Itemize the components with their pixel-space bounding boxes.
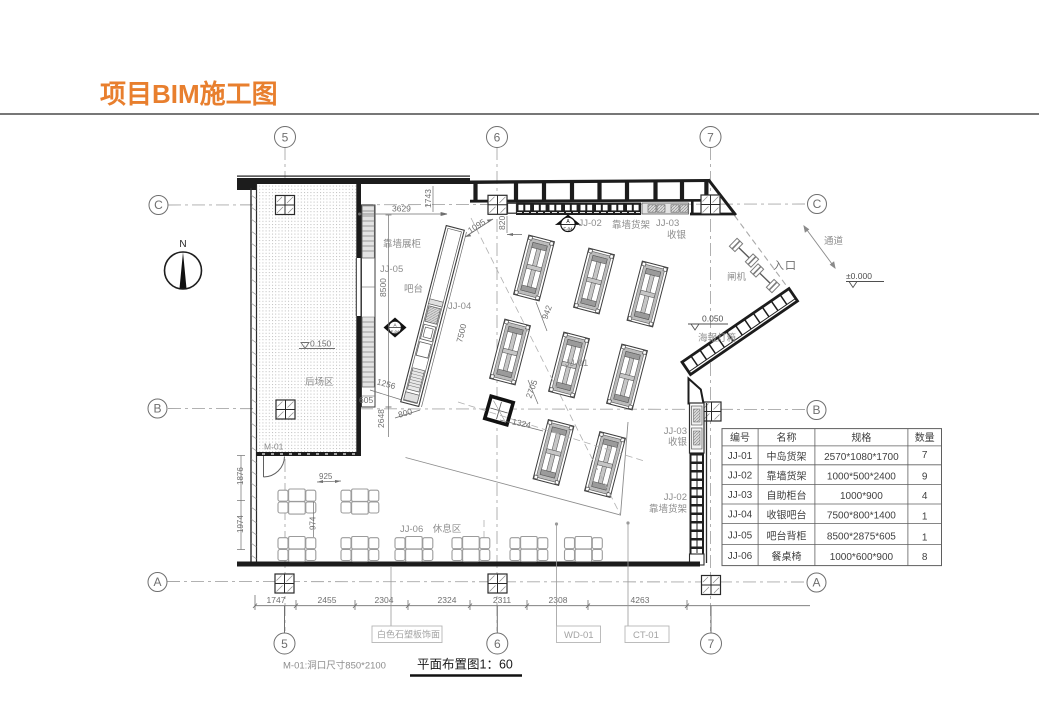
svg-text:6: 6 (494, 131, 501, 145)
svg-text:6: 6 (494, 637, 501, 651)
svg-text:JJ-03: JJ-03 (656, 218, 679, 229)
svg-text:1876: 1876 (236, 467, 245, 485)
svg-text:1974: 1974 (236, 515, 245, 533)
svg-text:JJ-05: JJ-05 (728, 531, 753, 542)
svg-text:2324: 2324 (438, 595, 457, 605)
svg-text:0.050: 0.050 (702, 314, 724, 324)
svg-text:1000*900: 1000*900 (840, 491, 883, 502)
svg-text:收银吧台: 收银吧台 (767, 509, 807, 522)
svg-text:3629: 3629 (392, 204, 411, 214)
svg-text:7: 7 (922, 450, 928, 461)
svg-text:A: A (812, 576, 820, 590)
svg-text:海報灯箱: 海報灯箱 (698, 332, 736, 344)
svg-text:8500*2875*605: 8500*2875*605 (827, 532, 896, 543)
svg-text:中岛货架: 中岛货架 (767, 450, 807, 463)
svg-text:规格: 规格 (851, 431, 871, 444)
svg-text:B: B (153, 402, 161, 416)
svg-text:M-01: M-01 (264, 442, 284, 452)
svg-text:925: 925 (319, 472, 333, 481)
svg-text:JJ-01: JJ-01 (728, 451, 753, 462)
svg-text:靠墙货架: 靠墙货架 (767, 470, 807, 483)
svg-text:收银: 收银 (667, 229, 687, 241)
svg-text:1747: 1747 (267, 595, 286, 605)
svg-text:JJ-05: JJ-05 (380, 264, 403, 275)
svg-text:2570*1080*1700: 2570*1080*1700 (824, 452, 899, 463)
svg-text:7500*800*1400: 7500*800*1400 (827, 511, 896, 522)
svg-text:收银: 收银 (668, 436, 688, 448)
svg-text:JJ-02: JJ-02 (664, 492, 687, 503)
svg-text:974: 974 (309, 516, 318, 530)
svg-text:JJ-03: JJ-03 (728, 490, 753, 501)
svg-text:编号: 编号 (730, 431, 750, 444)
svg-text:F-04: F-04 (391, 329, 400, 334)
svg-text:605: 605 (359, 395, 373, 405)
svg-text:1: 1 (922, 512, 928, 523)
svg-text:2311: 2311 (493, 595, 512, 605)
svg-text:吧台背柜: 吧台背柜 (767, 530, 807, 543)
svg-text:9: 9 (922, 472, 928, 483)
svg-text:0.150: 0.150 (310, 339, 332, 349)
svg-text:C: C (154, 198, 163, 212)
svg-text:±0.000: ±0.000 (846, 271, 872, 281)
svg-text:平面布置图1：60: 平面布置图1：60 (417, 658, 513, 672)
svg-text:CT-01: CT-01 (633, 630, 659, 641)
svg-text:5: 5 (281, 637, 288, 651)
svg-text:白色石塑板饰面: 白色石塑板饰面 (377, 629, 440, 640)
svg-text:靠墙货架: 靠墙货架 (612, 219, 651, 231)
svg-text:名称: 名称 (777, 431, 797, 444)
svg-text:7: 7 (707, 131, 714, 145)
svg-text:820: 820 (497, 216, 507, 230)
svg-text:项目BIM施工图: 项目BIM施工图 (100, 79, 278, 109)
svg-text:A: A (153, 575, 161, 589)
svg-text:4: 4 (922, 491, 928, 502)
svg-text:2455: 2455 (318, 595, 337, 605)
svg-text:自助柜台: 自助柜台 (767, 489, 807, 502)
svg-text:1000*600*900: 1000*600*900 (830, 552, 894, 563)
svg-text:吧台: 吧台 (404, 283, 423, 295)
svg-text:M-01:洞口尺寸850*2100: M-01:洞口尺寸850*2100 (283, 660, 386, 672)
svg-text:1000*500*2400: 1000*500*2400 (827, 472, 896, 483)
svg-text:JJ-06 休息区: JJ-06 休息区 (400, 523, 462, 535)
svg-text:B: B (812, 403, 820, 417)
svg-text:JJ-02: JJ-02 (579, 218, 602, 229)
svg-text:8500: 8500 (378, 278, 388, 297)
svg-text:JJ-03: JJ-03 (664, 426, 687, 437)
svg-text:JJ-02: JJ-02 (728, 471, 753, 482)
svg-text:C: C (813, 197, 822, 211)
svg-text:5: 5 (282, 131, 289, 145)
svg-text:靠墙货架: 靠墙货架 (649, 503, 688, 515)
svg-text:N: N (179, 239, 186, 250)
svg-text:JJ-04: JJ-04 (728, 510, 753, 521)
svg-text:餐桌椅: 餐桌椅 (772, 550, 802, 563)
svg-text:通道: 通道 (824, 235, 844, 247)
svg-text:4263: 4263 (631, 595, 650, 605)
svg-text:2648: 2648 (376, 409, 386, 428)
svg-text:JJ-06: JJ-06 (728, 551, 753, 562)
svg-text:后场区: 后场区 (305, 377, 334, 388)
svg-text:WD-01: WD-01 (564, 630, 594, 641)
svg-text:7: 7 (708, 637, 715, 651)
svg-text:1: 1 (922, 533, 928, 544)
svg-text:数量: 数量 (915, 431, 935, 444)
svg-text:闸机: 闸机 (727, 271, 747, 283)
svg-text:JJ-04: JJ-04 (448, 301, 471, 312)
svg-text:A: A (393, 323, 396, 328)
svg-text:8: 8 (922, 552, 928, 563)
svg-text:入口: 入口 (773, 260, 797, 272)
svg-text:JJ-01: JJ-01 (565, 358, 588, 369)
svg-text:F-04: F-04 (563, 227, 573, 232)
svg-text:2308: 2308 (549, 595, 568, 605)
svg-text:1743: 1743 (423, 189, 433, 208)
